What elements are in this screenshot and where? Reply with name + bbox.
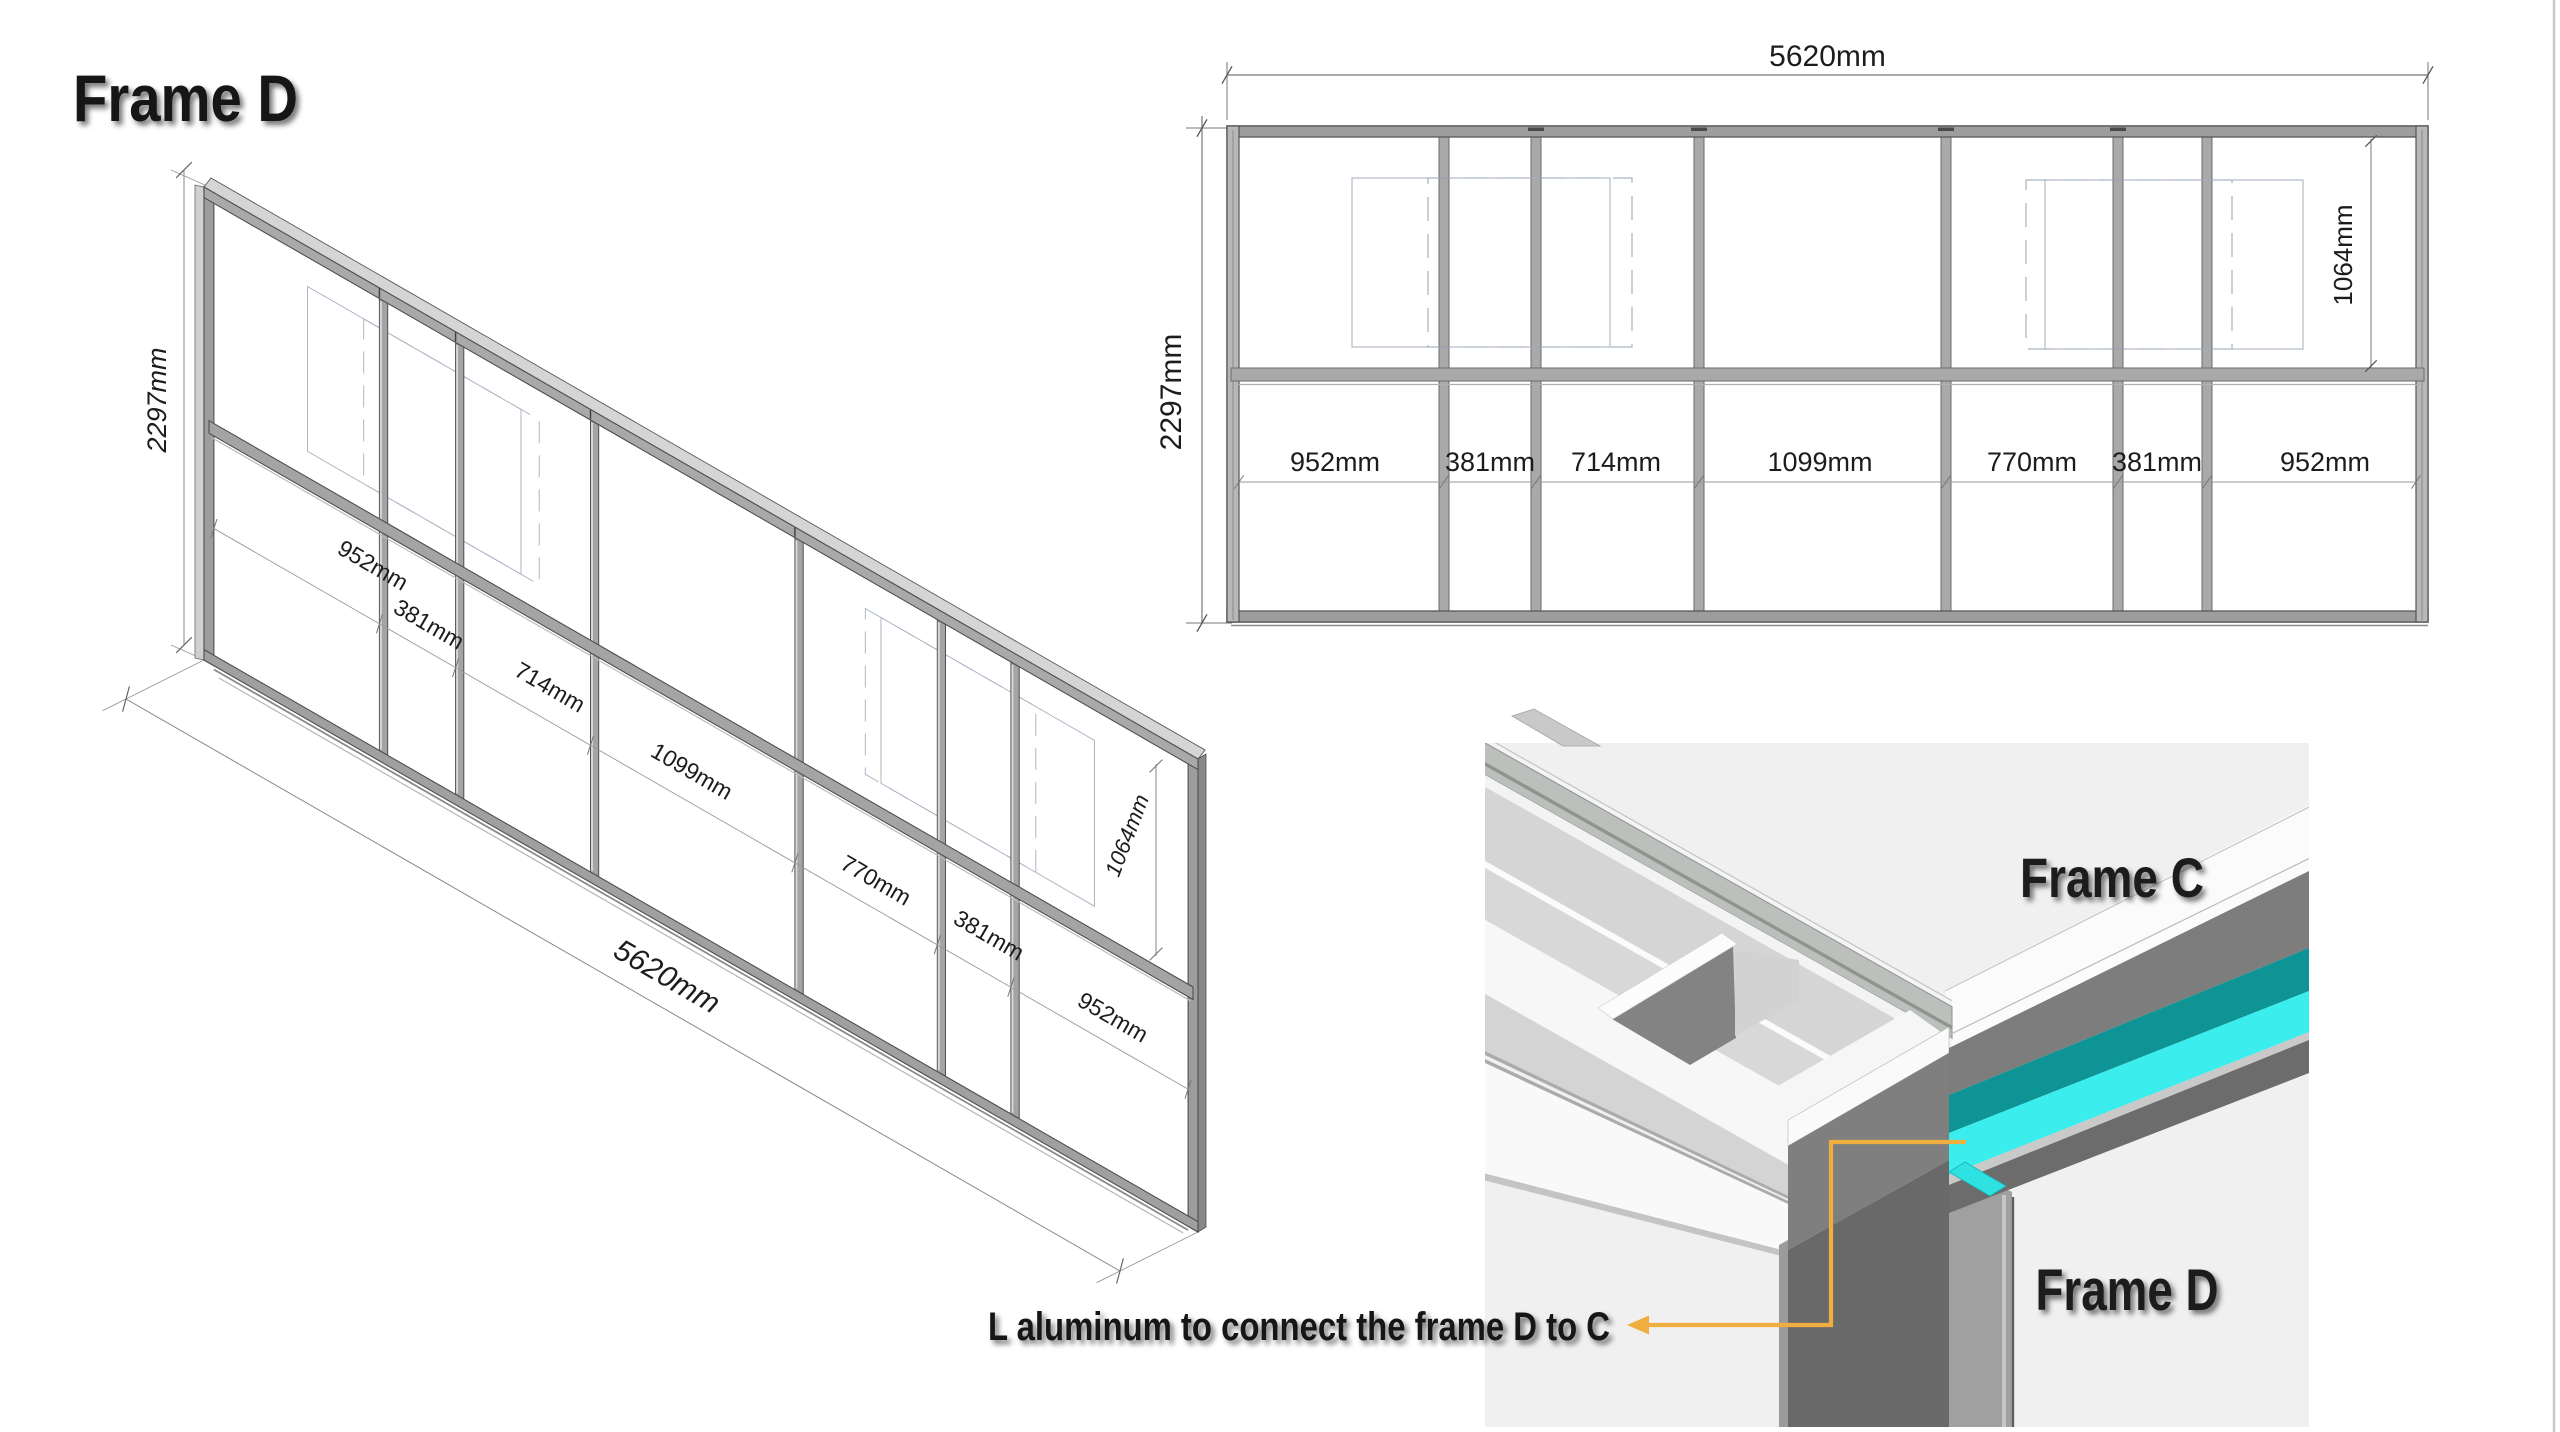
svg-text:770mm: 770mm	[1987, 447, 2077, 477]
svg-text:714mm: 714mm	[1571, 447, 1661, 477]
svg-text:L aluminum to connect the fram: L aluminum to connect the frame D to C	[988, 1305, 1610, 1349]
svg-text:381mm: 381mm	[2112, 447, 2202, 477]
svg-text:1099mm: 1099mm	[1767, 447, 1872, 477]
svg-text:Frame C: Frame C	[2020, 846, 2204, 909]
svg-text:Frame D: Frame D	[2036, 1258, 2219, 1323]
svg-text:952mm: 952mm	[2280, 447, 2370, 477]
svg-text:952mm: 952mm	[1290, 447, 1380, 477]
svg-text:Frame D: Frame D	[73, 61, 298, 135]
svg-text:2297mm: 2297mm	[1155, 334, 1188, 451]
svg-text:5620mm: 5620mm	[1769, 40, 1886, 73]
svg-text:1064mm: 1064mm	[2328, 204, 2358, 305]
svg-text:2297mm: 2297mm	[142, 347, 172, 453]
svg-text:381mm: 381mm	[1445, 447, 1535, 477]
